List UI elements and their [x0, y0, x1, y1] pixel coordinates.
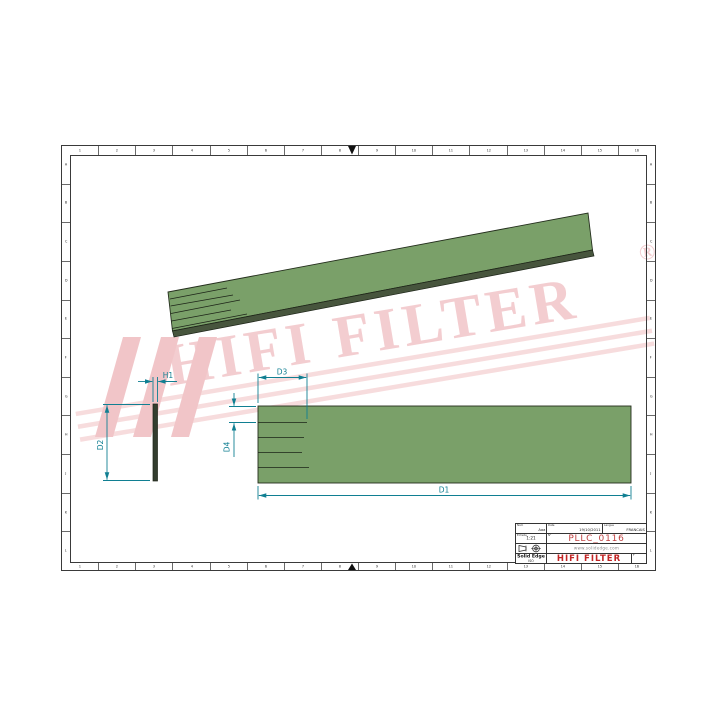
- zone-cell: 13: [508, 563, 545, 570]
- title-block-row-1: Nom Aaa Date 19/10/2011 Langue FRANCAIS: [516, 524, 646, 534]
- zone-label: 2: [116, 149, 118, 152]
- zone-cell: L: [647, 532, 655, 570]
- zone-cell: 2: [99, 563, 136, 570]
- drawing-page: HIFI FILTER ®: [0, 0, 720, 720]
- zone-cell: 12: [470, 146, 507, 155]
- zone-cell: 3: [136, 563, 173, 570]
- title-block-row-4: Solid Edge ISO HIFI FILTER F: [516, 554, 646, 563]
- zone-label: E: [65, 318, 67, 321]
- zone-label: 8: [339, 149, 341, 152]
- zone-label: 14: [561, 565, 565, 568]
- tb-language-label: Langue: [604, 524, 614, 527]
- zone-label: 14: [561, 149, 565, 152]
- tb-date-value: 19/10/2011: [580, 529, 601, 533]
- zone-label: C: [650, 240, 652, 243]
- zone-cell: 15: [582, 563, 619, 570]
- zone-label: 7: [302, 565, 304, 568]
- zone-label: 6: [265, 149, 267, 152]
- zone-label: 16: [635, 149, 639, 152]
- first-angle-projection-icon: [518, 544, 545, 553]
- zone-band-right: ABCDEFGHJKL: [647, 146, 655, 570]
- zone-cell: 9: [359, 563, 396, 570]
- tb-sheet-cell: F: [632, 554, 646, 563]
- zone-cell: L: [62, 532, 70, 570]
- zone-cell: E: [62, 301, 70, 340]
- zone-label: L: [65, 550, 67, 553]
- zone-cell: H: [647, 416, 655, 455]
- zone-cell: 15: [582, 146, 619, 155]
- zone-band-bottom: 12345678910111213141516: [62, 563, 655, 570]
- zone-label: 6: [265, 565, 267, 568]
- zone-label: 8: [339, 565, 341, 568]
- zone-label: 10: [412, 565, 416, 568]
- zone-label: 5: [228, 565, 230, 568]
- tb-date-cell: Date 19/10/2011: [547, 524, 603, 533]
- zone-label: D: [65, 279, 68, 282]
- zone-label: A: [650, 163, 652, 166]
- tb-name-value: Aaa: [538, 529, 545, 533]
- zone-cell: J: [647, 455, 655, 494]
- zone-cell: J: [62, 455, 70, 494]
- cad-software-sub: ISO: [528, 559, 533, 562]
- zone-label: E: [650, 318, 652, 321]
- tb-projection-cell: [516, 544, 547, 553]
- zone-cell: 13: [508, 146, 545, 155]
- zone-cell: D: [62, 262, 70, 301]
- zone-label: 4: [190, 149, 192, 152]
- tb-cad-cell: Solid Edge ISO: [516, 554, 547, 563]
- zone-cell: D: [647, 262, 655, 301]
- zone-cell: F: [62, 339, 70, 378]
- zone-label: K: [650, 511, 652, 514]
- zone-label: 11: [449, 149, 453, 152]
- zone-cell: E: [647, 301, 655, 340]
- zone-label: C: [65, 240, 67, 243]
- tb-part-label: N°: [548, 534, 551, 537]
- zone-label: B: [650, 202, 652, 205]
- zone-label: 15: [598, 149, 602, 152]
- zone-cell: B: [647, 185, 655, 224]
- zone-cell: 6: [248, 563, 285, 570]
- zone-label: H: [65, 434, 67, 437]
- zone-cell: H: [62, 416, 70, 455]
- zone-cell: 6: [248, 146, 285, 155]
- zone-label: 16: [635, 565, 639, 568]
- zone-label: L: [650, 550, 652, 553]
- zone-label: 7: [302, 149, 304, 152]
- zone-label: J: [66, 472, 67, 475]
- zone-cell: G: [62, 378, 70, 417]
- zone-cell: 2: [99, 146, 136, 155]
- zone-cell: C: [62, 223, 70, 262]
- zone-label: H: [650, 434, 652, 437]
- zone-cell: 11: [433, 146, 470, 155]
- zone-label: K: [65, 511, 67, 514]
- sheet-inner-frame: [70, 155, 647, 563]
- zone-cell: 12: [470, 563, 507, 570]
- zone-label: 3: [153, 149, 155, 152]
- zone-label: 12: [486, 149, 490, 152]
- tb-scale-cell: Echelle 1:21: [516, 534, 547, 543]
- zone-cell: 10: [396, 146, 433, 155]
- zone-label: G: [65, 395, 68, 398]
- zone-cell: 7: [285, 563, 322, 570]
- zone-cell: 14: [545, 563, 582, 570]
- tb-name-label: Nom: [517, 524, 523, 527]
- zone-cell: 7: [285, 146, 322, 155]
- tb-scale-value: 1:21: [521, 535, 542, 541]
- zone-cell: G: [647, 378, 655, 417]
- zone-label: F: [65, 356, 67, 359]
- zone-label: 9: [376, 565, 378, 568]
- zone-cell: 5: [211, 563, 248, 570]
- zone-cell: 5: [211, 146, 248, 155]
- zone-cell: 3: [136, 146, 173, 155]
- solidedge-url: www.solidedge.com: [563, 545, 630, 551]
- zone-cell: 8: [322, 563, 359, 570]
- tb-website-cell: www.solidedge.com: [547, 544, 646, 553]
- tb-sheet-label: F: [633, 554, 635, 557]
- tb-part-cell: N° PLLC_0116: [547, 534, 646, 543]
- zone-label: F: [650, 356, 652, 359]
- zone-cell: 4: [173, 146, 210, 155]
- zone-label: A: [65, 163, 67, 166]
- brand-text: HIFI FILTER: [547, 554, 631, 563]
- title-block-row-3: www.solidedge.com: [516, 544, 646, 554]
- zone-cell: C: [647, 223, 655, 262]
- zone-label: J: [651, 472, 652, 475]
- part-number: PLLC_0116: [547, 534, 646, 543]
- zone-label: 3: [153, 565, 155, 568]
- tb-date-label: Date: [548, 524, 554, 527]
- zone-label: 2: [116, 565, 118, 568]
- zone-cell: B: [62, 185, 70, 224]
- zone-label: 1: [79, 149, 81, 152]
- zone-cell: 8: [322, 146, 359, 155]
- zone-cell: 9: [359, 146, 396, 155]
- zone-cell: 14: [545, 146, 582, 155]
- tb-brand-cell: HIFI FILTER: [547, 554, 632, 563]
- zone-label: 10: [412, 149, 416, 152]
- tb-language-cell: Langue FRANCAIS: [603, 524, 646, 533]
- zone-cell: K: [647, 494, 655, 533]
- zone-label: 13: [523, 149, 527, 152]
- zone-cell: A: [647, 146, 655, 185]
- zone-label: D: [650, 279, 653, 282]
- zone-label: 15: [598, 565, 602, 568]
- zone-cell: 4: [173, 563, 210, 570]
- zone-band-top: 12345678910111213141516: [62, 146, 655, 155]
- zone-label: 5: [228, 149, 230, 152]
- zone-label: 12: [486, 565, 490, 568]
- zone-cell: A: [62, 146, 70, 185]
- title-block-row-2: Echelle 1:21 N° PLLC_0116: [516, 534, 646, 544]
- zone-label: B: [65, 202, 67, 205]
- zone-cell: K: [62, 494, 70, 533]
- zone-cell: F: [647, 339, 655, 378]
- tb-name-cell: Nom Aaa: [516, 524, 547, 533]
- title-block: Nom Aaa Date 19/10/2011 Langue FRANCAIS …: [515, 523, 647, 564]
- zone-cell: 10: [396, 563, 433, 570]
- zone-label: G: [650, 395, 653, 398]
- zone-band-left: ABCDEFGHJKL: [62, 146, 70, 570]
- zone-label: 9: [376, 149, 378, 152]
- zone-label: 11: [449, 565, 453, 568]
- tb-language-value: FRANCAIS: [626, 529, 645, 533]
- zone-label: 1: [79, 565, 81, 568]
- zone-cell: 11: [433, 563, 470, 570]
- zone-label: 4: [190, 565, 192, 568]
- zone-label: 13: [523, 565, 527, 568]
